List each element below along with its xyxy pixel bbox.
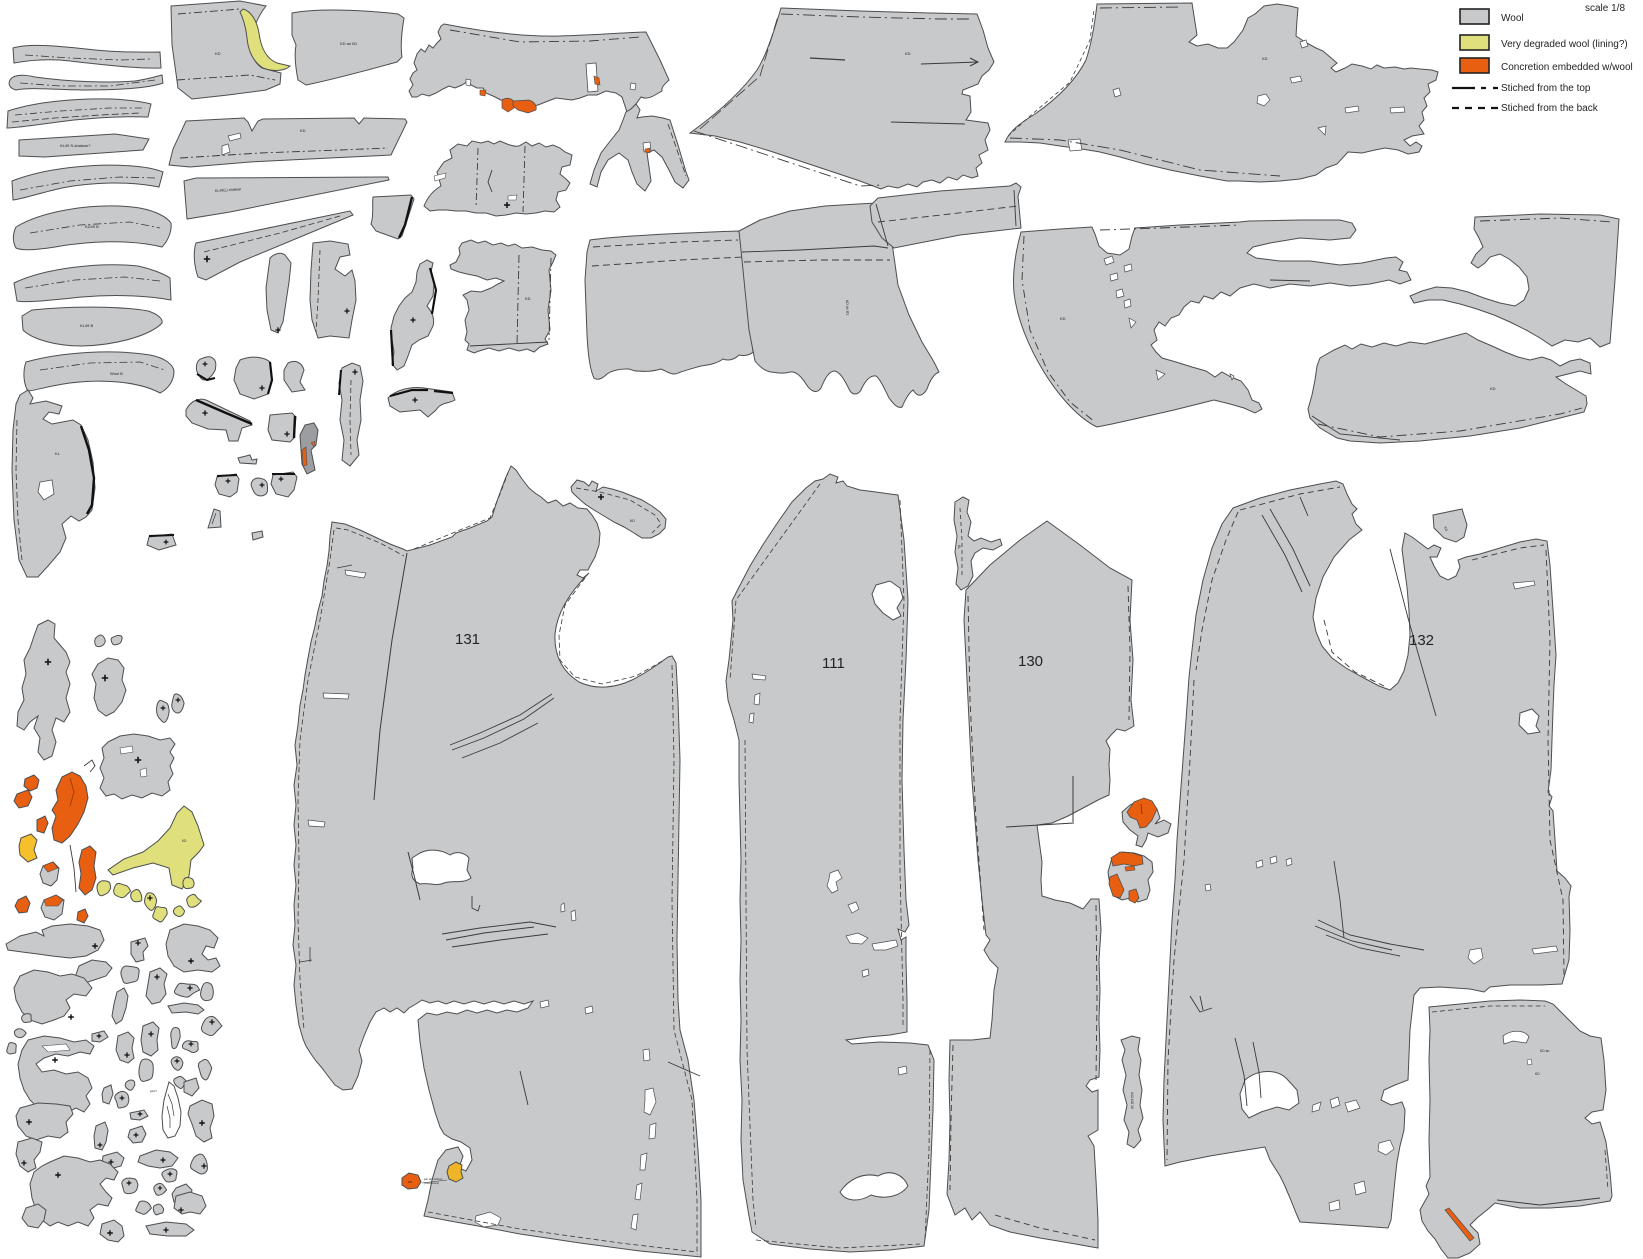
svg-text:132: 132: [1409, 632, 1434, 649]
svg-text:KL: KL: [957, 545, 961, 549]
svg-text:join with leftover: join with leftover: [423, 1177, 443, 1181]
svg-text:KD an B1: KD an B1: [340, 41, 358, 46]
svg-text:KD: KD: [1262, 56, 1268, 61]
svg-text:KD49 B: KD49 B: [85, 224, 99, 229]
svg-text:KD: KD: [905, 51, 911, 56]
svg-text:KD: KD: [1060, 316, 1066, 321]
svg-text:joins?: joins?: [149, 1089, 157, 1093]
svg-text:Stiched from the back: Stiched from the back: [1501, 103, 1599, 114]
svg-text:KD an B1: KD an B1: [845, 300, 850, 316]
svg-text:(concretions): (concretions): [424, 1181, 439, 1185]
svg-text:KL49 S-shalwar?: KL49 S-shalwar?: [60, 143, 91, 148]
svg-text:#12,t48 10: #12,t48 10: [1130, 1092, 1134, 1109]
svg-text:Very degraded wool (lining?): Very degraded wool (lining?): [1501, 39, 1628, 50]
svg-text:Stiched from the top: Stiched from the top: [1501, 83, 1591, 94]
svg-text:KD: KD: [215, 51, 221, 56]
svg-text:131: 131: [455, 631, 480, 648]
svg-text:111: 111: [822, 655, 845, 672]
svg-text:KD: KD: [630, 519, 635, 523]
svg-text:KD: KD: [525, 296, 531, 301]
svg-text:Wool: Wool: [1501, 13, 1524, 24]
svg-text:scale 1/8: scale 1/8: [1585, 3, 1625, 14]
svg-text:KD: KD: [300, 128, 306, 133]
svg-text:KD: KD: [182, 839, 187, 843]
svg-text:Concretion embedded w/wool: Concretion embedded w/wool: [1501, 62, 1633, 73]
svg-text:KD an: KD an: [1540, 1049, 1550, 1053]
svg-text:KL49 B: KL49 B: [80, 323, 93, 328]
svg-text:130: 130: [1018, 653, 1043, 670]
svg-text:Wool B: Wool B: [110, 371, 123, 376]
svg-text:KL: KL: [55, 451, 61, 456]
svg-text:KD: KD: [1490, 386, 1496, 391]
svg-text:KD: KD: [1535, 1072, 1540, 1076]
